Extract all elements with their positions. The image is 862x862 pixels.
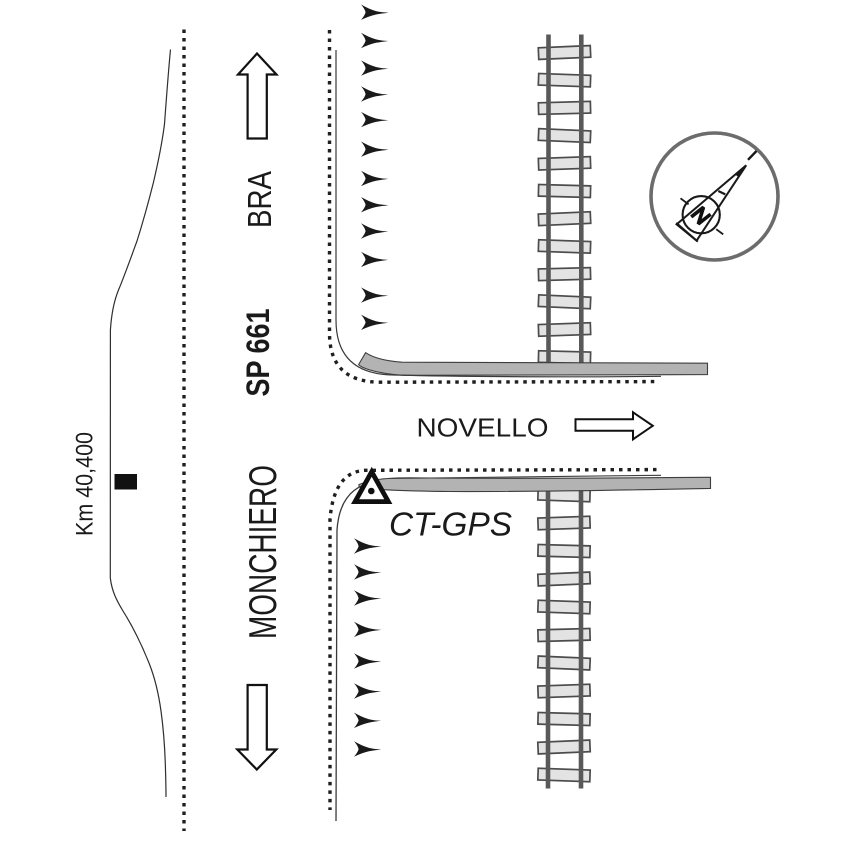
svg-text:NOVELLO: NOVELLO: [417, 412, 549, 442]
svg-text:CT-GPS: CT-GPS: [389, 506, 512, 543]
svg-text:BRA: BRA: [241, 171, 278, 228]
svg-text:MONCHIERO: MONCHIERO: [242, 465, 285, 639]
svg-text:Km 40,400: Km 40,400: [72, 432, 99, 536]
svg-text:SP 661: SP 661: [240, 309, 276, 397]
